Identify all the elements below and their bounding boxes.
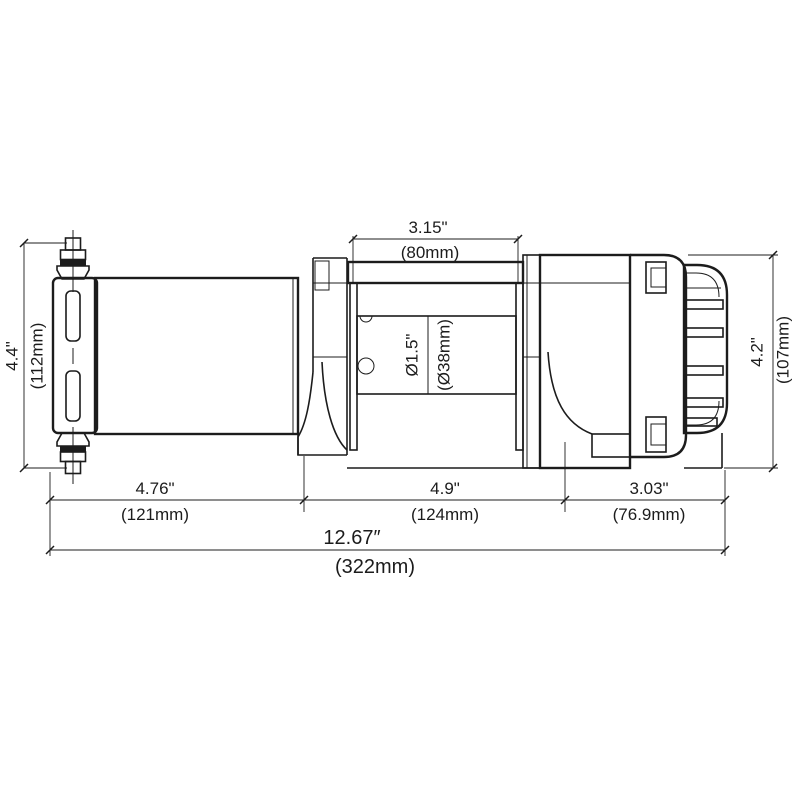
right-foot-base xyxy=(592,434,630,457)
winch-dimension-drawing: Ø1.5" (Ø38mm) xyxy=(0,0,800,800)
drum-diameter-mm: (Ø38mm) xyxy=(434,319,453,391)
drum-cable-hole xyxy=(358,358,374,374)
clutch-housing xyxy=(540,255,630,468)
mounting-bracket xyxy=(53,278,97,433)
bolt-washer xyxy=(61,260,86,266)
right-support-bracket xyxy=(523,255,630,468)
motor-clip-top xyxy=(646,262,666,293)
dim-top-inches: 3.15" xyxy=(408,218,447,237)
dim-right-inches: 4.2" xyxy=(747,337,766,367)
dim-overall-mm: (322mm) xyxy=(335,556,415,578)
drum-diameter-inches: Ø1.5" xyxy=(402,334,421,377)
end-cap-rib xyxy=(684,366,723,375)
dim-left-mm: (112mm) xyxy=(27,323,46,390)
dim-bottom-right-inches: 3.03" xyxy=(629,479,668,498)
end-cap-rib xyxy=(684,398,723,407)
dim-right-height: 4.2" (107mm) xyxy=(688,251,792,472)
mounting-bolt-bottom xyxy=(57,427,89,484)
dim-bottom-left-inches: 4.76" xyxy=(135,479,174,498)
drum-tie-bar xyxy=(348,262,523,283)
dim-bottom-right-mm: (76.9mm) xyxy=(613,505,686,524)
motor-housing xyxy=(630,255,722,468)
support-plate xyxy=(523,255,540,468)
dim-overall-inches: 12.67″ xyxy=(323,527,380,549)
dim-right-mm: (107mm) xyxy=(773,316,792,384)
bracket-slot-bottom xyxy=(66,371,80,421)
mounting-bolt-top xyxy=(57,230,89,292)
rope-drum: Ø1.5" (Ø38mm) xyxy=(348,262,523,450)
dim-bottom-mid-inches: 4.9" xyxy=(430,479,460,498)
motor-clip-bottom xyxy=(646,417,666,452)
bracket-plate xyxy=(53,278,97,433)
dim-top-mm: (80mm) xyxy=(401,243,460,262)
bracket-slot-top xyxy=(66,291,80,341)
drum-flange-right xyxy=(516,283,523,450)
dim-bottom-left-mm: (121mm) xyxy=(121,505,189,524)
dim-bottom-row1: 4.76" (121mm) 4.9" (124mm) 3.03" (76.9mm… xyxy=(46,442,729,556)
end-cap-rib xyxy=(684,300,723,309)
gear-housing-body xyxy=(95,278,298,434)
end-cap-rib xyxy=(684,328,723,337)
motor-body xyxy=(630,255,686,457)
support-clip-top xyxy=(315,261,329,290)
left-foot-inner-curve xyxy=(322,362,347,450)
left-foot xyxy=(298,372,347,455)
dim-overall-width: 12.67″ (322mm) xyxy=(46,527,729,578)
right-foot-curve xyxy=(548,352,592,434)
gear-housing xyxy=(95,278,298,455)
drum-cable-hole-top xyxy=(360,316,372,322)
dim-left-height: 4.4" (112mm) xyxy=(2,239,67,472)
dim-bottom-mid-mm: (124mm) xyxy=(411,505,479,524)
left-support-bracket xyxy=(298,258,347,455)
dim-left-inches: 4.4" xyxy=(2,341,21,371)
dim-top-width: 3.15" (80mm) xyxy=(349,218,522,284)
drum-flange-left xyxy=(350,283,357,450)
motor-end-cap xyxy=(684,265,727,433)
